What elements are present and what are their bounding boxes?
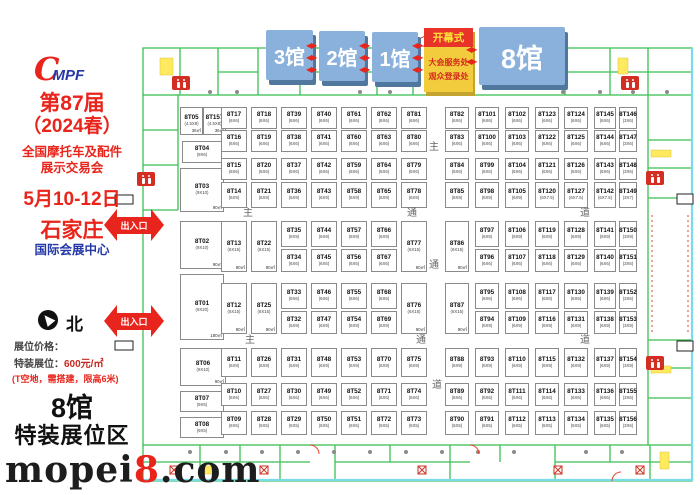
booth-8T07: 8T07(9X5): [180, 391, 224, 412]
booth-8T33: 8T33(6X6): [281, 283, 307, 309]
transfer-arrows-icon: ◀▶◀▶◀▶: [359, 42, 369, 74]
booth-8T58: 8T58(6X9): [341, 182, 367, 208]
booth-8T93: 8T93(6X9): [475, 348, 499, 377]
restroom-icon: [172, 76, 190, 90]
booth-8T22: 8T22(6X15)90㎡: [251, 221, 277, 272]
booth-8T43: 8T43(6X9): [311, 182, 337, 208]
service-desk-label: 大会服务处: [429, 56, 469, 70]
booth-8T70: 8T70(6X9): [371, 348, 397, 377]
booth-8T57: 8T57(6X9): [341, 221, 367, 247]
price-heading: 展位价格：: [14, 342, 150, 353]
booth-8T154: 8T154(3X9): [619, 348, 637, 377]
booth-8T144: 8T144(6X6): [594, 130, 616, 152]
booth-8T119: 8T119(6X9): [535, 221, 559, 247]
booth-8T10: 8T10(6X6): [221, 383, 247, 406]
booth-8T12: 8T12(6X15)90㎡: [221, 283, 247, 334]
booth-8T121: 8T121(6X6): [535, 158, 559, 180]
booth-8T13: 8T13(6X15)90㎡: [221, 221, 247, 272]
booth-8T67: 8T67(6X6): [371, 249, 397, 272]
booth-8T101: 8T101(6X6): [475, 107, 499, 129]
arrow-right-icon: [151, 209, 164, 241]
booth-8T60: 8T60(6X6): [341, 130, 367, 152]
booth-8T136: 8T136(6X6): [594, 383, 616, 406]
booth-8T79: 8T79(6X6): [401, 158, 427, 180]
aisle-label: 道: [580, 331, 590, 346]
booth-8T148: 8T148(3X6): [619, 158, 637, 180]
booth-8T125: 8T125(6X6): [564, 130, 588, 152]
booth-8T115: 8T115(6X9): [535, 348, 559, 377]
booth-8T134: 8T134(6X5): [564, 411, 588, 435]
booth-8T06: 8T06(9X10)90㎡: [180, 348, 226, 386]
price-note: (T空地，需搭建，限高6米): [12, 375, 148, 385]
expo-dates: 5月10-12日: [4, 190, 140, 211]
booth-8T126: 8T126(6X6): [564, 158, 588, 180]
aisle-label: 主: [245, 331, 255, 346]
booth-8T11: 8T11(6X9): [221, 348, 247, 377]
booth-8T75: 8T75(6X9): [401, 348, 427, 377]
booth-8T50: 8T50(6X5): [311, 411, 337, 435]
booth-8T96: 8T96(6X6): [475, 249, 499, 272]
booth-8T56: 8T56(6X6): [341, 249, 367, 272]
booth-8T149: 8T149(3X7): [619, 182, 637, 208]
booth-8T38: 8T38(6X6): [281, 130, 307, 152]
watermark-pre: mopei: [5, 449, 134, 491]
restroom-icon: [646, 171, 664, 185]
booth-8T113: 8T113(6X5): [535, 411, 559, 435]
transfer-arrows-icon: ◀▶◀▶◀▶: [306, 42, 316, 74]
edition-title: 第87届: [4, 92, 140, 115]
booth-8T147: 8T147(3X6): [619, 130, 637, 152]
booth-8T28: 8T28(6X5): [251, 411, 277, 435]
visitor-registration-label: 观众登录处: [429, 70, 469, 84]
booth-8T122: 8T122(6X6): [535, 130, 559, 152]
logo-text: MPF: [52, 67, 84, 84]
booth-8T44: 8T44(6X9): [311, 221, 337, 247]
booth-8T84: 8T84(6X6): [445, 158, 469, 180]
booth-8T110: 8T110(6X9): [505, 348, 529, 377]
booth-8T129: 8T129(6X6): [564, 249, 588, 272]
special-booth-zone-title: 特装展位区: [4, 424, 140, 448]
booth-8T26: 8T26(6X9): [251, 348, 277, 377]
booth-8T77: 8T77(6X15)90㎡: [401, 221, 427, 272]
booth-8T143: 8T143(6X6): [594, 158, 616, 180]
booth-8T112: 8T112(6X5): [505, 411, 529, 435]
booth-8T53: 8T53(6X9): [341, 348, 367, 377]
restroom-icon: [621, 76, 639, 90]
aisle-label: 通: [416, 331, 426, 346]
booth-8T01: 8T01(9X20)180㎡: [180, 274, 224, 340]
booth-8T41: 8T41(6X6): [311, 130, 337, 152]
booth-8T120: 8T120(6X7.5): [535, 182, 559, 208]
booth-8T133: 8T133(6X6): [564, 383, 588, 406]
booth-8T88: 8T88(6X9): [445, 348, 469, 377]
transfer-arrows-icon: ◀▶◀▶: [466, 46, 476, 66]
aisle-label: 主: [429, 138, 439, 153]
booth-8T130: 8T130(6X6): [564, 283, 588, 309]
expo-name-line1: 全国摩托车及配件: [4, 146, 140, 160]
booth-8T76: 8T76(6X15)90㎡: [401, 283, 427, 334]
booth-8T135: 8T135(6X5): [594, 411, 616, 435]
booth-8T141: 8T141(6X9): [594, 221, 616, 247]
booth-8T99: 8T99(6X6): [475, 158, 499, 180]
booth-8T31: 8T31(6X9): [281, 348, 307, 377]
booth-8T54: 8T54(6X9): [341, 311, 367, 334]
booth-8T100: 8T100(6X6): [475, 130, 499, 152]
booth-8T68: 8T68(6X6): [371, 283, 397, 309]
booth-8T104: 8T104(6X6): [505, 158, 529, 180]
booth-8T15: 8T15(6X6): [221, 158, 247, 180]
aisle-label: 道: [432, 376, 442, 391]
booth-8T16: 8T16(6X6): [221, 130, 247, 152]
booth-8T114: 8T114(6X6): [535, 383, 559, 406]
expo-name-line2: 展示交易会: [4, 162, 140, 176]
booth-8T66: 8T66(6X9): [371, 221, 397, 247]
expo-venue: 国际会展中心: [4, 244, 140, 258]
arrow-right-icon: [151, 305, 164, 337]
booth-8T71: 8T71(6X6): [371, 383, 397, 406]
booth-8T150: 8T150(3X9): [619, 221, 637, 247]
booth-8T39: 8T39(6X6): [281, 107, 307, 129]
booth-8T142: 8T142(6X7.5): [594, 182, 616, 208]
booth-8T83: 8T83(6X6): [445, 130, 469, 152]
arrow-left-icon: [104, 305, 117, 337]
booth-8T94: 8T94(6X9): [475, 311, 499, 334]
restroom-icon: [646, 356, 664, 370]
booth-8T37: 8T37(6X6): [281, 158, 307, 180]
north-compass-icon: [38, 310, 58, 330]
booth-8T106: 8T106(6X9): [505, 221, 529, 247]
booth-8T69: 8T69(6X9): [371, 311, 397, 334]
booth-8T87: 8T87(6X15)90㎡: [445, 283, 469, 334]
booth-8T138: 8T138(6X9): [594, 311, 616, 334]
hall-8-box: 8馆: [479, 27, 565, 85]
booth-8T47: 8T47(6X9): [311, 311, 337, 334]
price-value: 600元/㎡: [64, 359, 103, 370]
watermark: mopei8.com: [5, 449, 260, 491]
booth-8T151: 8T151(3X6): [619, 249, 637, 272]
booth-8T118: 8T118(6X6): [535, 249, 559, 272]
booth-8T03: 8T03(9X10)90㎡: [180, 168, 224, 212]
booth-8T140: 8T140(6X6): [594, 249, 616, 272]
booth-8T21: 8T21(6X9): [251, 182, 277, 208]
booth-8T73: 8T73(6X5): [401, 411, 427, 435]
booth-8T20: 8T20(6X6): [251, 158, 277, 180]
booth-8T123: 8T123(6X6): [535, 107, 559, 129]
booth-8T155: 8T155(3X6): [619, 383, 637, 406]
booth-8T82: 8T82(6X6): [445, 107, 469, 129]
booth-8T86: 8T86(6X15)90㎡: [445, 221, 469, 272]
booth-8T85: 8T85(6X9): [445, 182, 469, 208]
booth-8T49: 8T49(6X6): [311, 383, 337, 406]
booth-8T128: 8T128(6X9): [564, 221, 588, 247]
booth-8T102: 8T102(6X6): [505, 107, 529, 129]
booth-8T52: 8T52(6X6): [341, 383, 367, 406]
booth-8T111: 8T111(6X6): [505, 383, 529, 406]
booth-8T64: 8T64(6X6): [371, 158, 397, 180]
booth-8T108: 8T108(6X6): [505, 283, 529, 309]
booth-8T139: 8T139(6X6): [594, 283, 616, 309]
booth-8T124: 8T124(6X6): [564, 107, 588, 129]
booth-8T132: 8T132(6X9): [564, 348, 588, 377]
entrance-exit-arrow: 出入口: [104, 304, 164, 338]
booth-8T91: 8T91(6X5): [475, 411, 499, 435]
booth-8T72: 8T72(6X5): [371, 411, 397, 435]
booth-8T65: 8T65(6X9): [371, 182, 397, 208]
aisle-label: 主: [243, 204, 253, 219]
booth-8T81: 8T81(6X6): [401, 107, 427, 129]
booth-8T30: 8T30(6X6): [281, 383, 307, 406]
booth-8T109: 8T109(6X9): [505, 311, 529, 334]
aisle-label: 通: [407, 204, 417, 219]
booth-8T46: 8T46(6X6): [311, 283, 337, 309]
booth-8T55: 8T55(6X6): [341, 283, 367, 309]
exhibition-floorplan: CMPF 第87届 （2024春） 全国摩托车及配件 展示交易会 5月10-12…: [0, 0, 700, 495]
booth-8T35: 8T35(6X9): [281, 221, 307, 247]
booth-8T40: 8T40(6X6): [311, 107, 337, 129]
booth-8T107: 8T107(6X6): [505, 249, 529, 272]
booth-8T97: 8T97(6X9): [475, 221, 499, 247]
booth-8T95: 8T95(6X6): [475, 283, 499, 309]
booth-8T36: 8T36(6X9): [281, 182, 307, 208]
booth-8T08: 8T08(9X5): [180, 417, 224, 438]
booth-8T05: 8T05(4.5X8)36㎡: [180, 107, 203, 135]
booth-8T92: 8T92(6X6): [475, 383, 499, 406]
booth-8T02: 8T02(9X10)90㎡: [180, 221, 224, 269]
booth-8T29: 8T29(6X5): [281, 411, 307, 435]
booth-8T51: 8T51(6X5): [341, 411, 367, 435]
price-line: 特装展位：600元/㎡: [14, 359, 150, 370]
booth-8T146: 8T146(3X6): [619, 107, 637, 129]
booth-8T27: 8T27(6X6): [251, 383, 277, 406]
booth-8T32: 8T32(6X9): [281, 311, 307, 334]
booth-8T18: 8T18(6X6): [251, 107, 277, 129]
aisle-label: 道: [580, 204, 590, 219]
booth-8T145: 8T145(6X6): [594, 107, 616, 129]
booth-8T42: 8T42(6X6): [311, 158, 337, 180]
expo-city: 石家庄: [4, 219, 140, 242]
booth-8T137: 8T137(6X9): [594, 348, 616, 377]
booth-8T48: 8T48(6X9): [311, 348, 337, 377]
booth-8T19: 8T19(6X6): [251, 130, 277, 152]
booth-8T34: 8T34(6X6): [281, 249, 307, 272]
booth-8T61: 8T61(6X6): [341, 107, 367, 129]
edition-year: （2024春）: [4, 117, 140, 138]
watermark-post: .com: [160, 449, 261, 491]
booth-8T152: 8T152(3X6): [619, 283, 637, 309]
booth-8T45: 8T45(6X6): [311, 249, 337, 272]
booth-8T59: 8T59(6X6): [341, 158, 367, 180]
hall8-title: 8馆: [4, 394, 140, 424]
booth-8T25: 8T25(6X15)90㎡: [251, 283, 277, 334]
north-label: 北: [66, 310, 83, 335]
booth-8T117: 8T117(6X6): [535, 283, 559, 309]
booth-8T156: 8T156(3X6): [619, 411, 637, 435]
booth-8T17: 8T17(6X6): [221, 107, 247, 129]
transfer-arrows-icon: ◀▶◀▶◀▶: [412, 42, 422, 74]
booth-8T04: 8T04(9X6): [182, 141, 222, 163]
entrance-label: 出入口: [117, 313, 151, 330]
aisle-label: 通: [429, 256, 439, 271]
booth-8T09: 8T09(6X5): [221, 411, 247, 435]
cmpf-logo: CMPF: [34, 50, 84, 88]
booth-8T62: 8T62(6X6): [371, 107, 397, 129]
booth-8T89: 8T89(6X6): [445, 383, 469, 406]
booth-8T74: 8T74(6X6): [401, 383, 427, 406]
booth-8T153: 8T153(3X9): [619, 311, 637, 334]
booth-8T90: 8T90(6X5): [445, 411, 469, 435]
watermark-num: 8: [134, 449, 160, 491]
booth-8T116: 8T116(6X9): [535, 311, 559, 334]
booth-8T105: 8T105(6X9): [505, 182, 529, 208]
booth-8T80: 8T80(6X6): [401, 130, 427, 152]
booth-8T103: 8T103(6X6): [505, 130, 529, 152]
booth-8T98: 8T98(6X9): [475, 182, 499, 208]
booth-8T63: 8T63(6X6): [371, 130, 397, 152]
price-label: 特装展位：: [14, 359, 64, 370]
